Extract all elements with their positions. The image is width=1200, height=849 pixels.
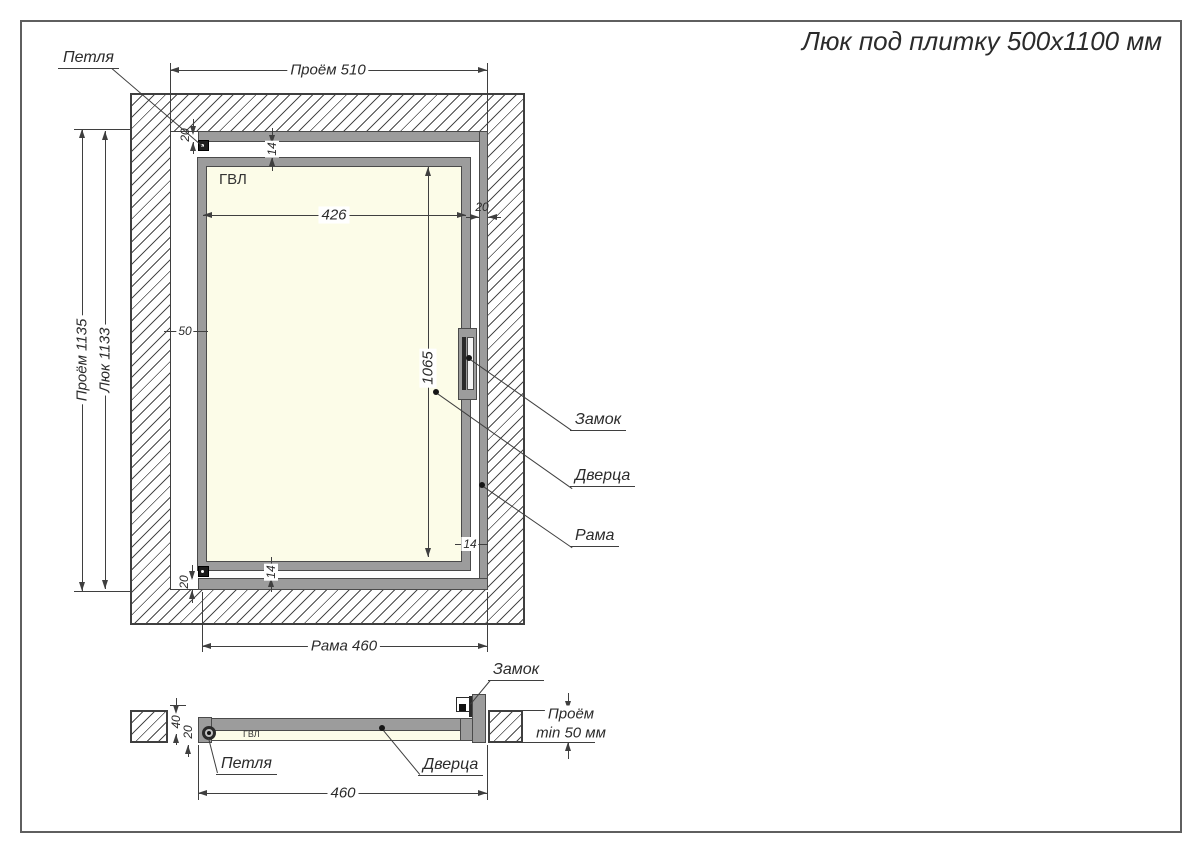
- dim-gap-bottom: 14: [264, 563, 278, 580]
- label-hinge: Петля: [58, 49, 119, 69]
- dim-opening-width: Проём 510: [287, 62, 368, 79]
- frame-top-band: [198, 131, 488, 142]
- dim-side-offset: 50: [176, 324, 193, 338]
- dim-door-inner-width: 426: [318, 207, 349, 224]
- section-lock-plate: [472, 694, 486, 743]
- lock-latch-bar: [462, 337, 466, 390]
- section-label-hinge: Петля: [216, 755, 277, 775]
- section-lock-lever: [469, 696, 472, 717]
- label-frame: Рама: [570, 527, 619, 547]
- dim-frame-bottom: 20: [177, 573, 191, 590]
- hinge-bottom-icon: [198, 566, 209, 577]
- section-gvl-label: ГВЛ: [243, 729, 260, 739]
- dim-hatch-height: Люк 1133: [97, 324, 114, 395]
- dim-door-inner-height: 1065: [420, 348, 437, 387]
- dim-frame-top: 20: [178, 126, 192, 143]
- section-hinge-pin: [207, 731, 211, 735]
- wall-left-hatch: [130, 710, 168, 743]
- section-lock-core: [459, 704, 466, 711]
- gvl-label: ГВЛ: [219, 171, 247, 188]
- label-door: Дверца: [570, 467, 635, 487]
- section-label-door: Дверца: [418, 756, 483, 776]
- dim-gap-right: 14: [461, 537, 478, 551]
- wall-right-hatch: [488, 710, 523, 743]
- dim-frame-width: Рама 460: [308, 638, 380, 655]
- dim-frame-right: 20: [473, 200, 490, 214]
- drawing-page: Люк под плитку 500х1100 мм ГВЛ Проём 510: [0, 0, 1200, 849]
- dim-section-opening-note-1: Проём: [545, 706, 597, 723]
- dim-gap-top: 14: [265, 140, 279, 157]
- frame-bottom-band: [198, 578, 488, 590]
- dim-section-opening-note-2: min 50 мм: [533, 725, 609, 742]
- lock-slot: [467, 337, 474, 390]
- section-label-lock: Замок: [488, 661, 544, 681]
- dim-opening-height: Проём 1135: [74, 316, 91, 405]
- dim-section-frame-width: 460: [327, 785, 358, 802]
- label-lock: Замок: [570, 411, 626, 431]
- drawing-title: Люк под плитку 500х1100 мм: [802, 26, 1162, 57]
- dim-section-panel: 20: [181, 723, 195, 740]
